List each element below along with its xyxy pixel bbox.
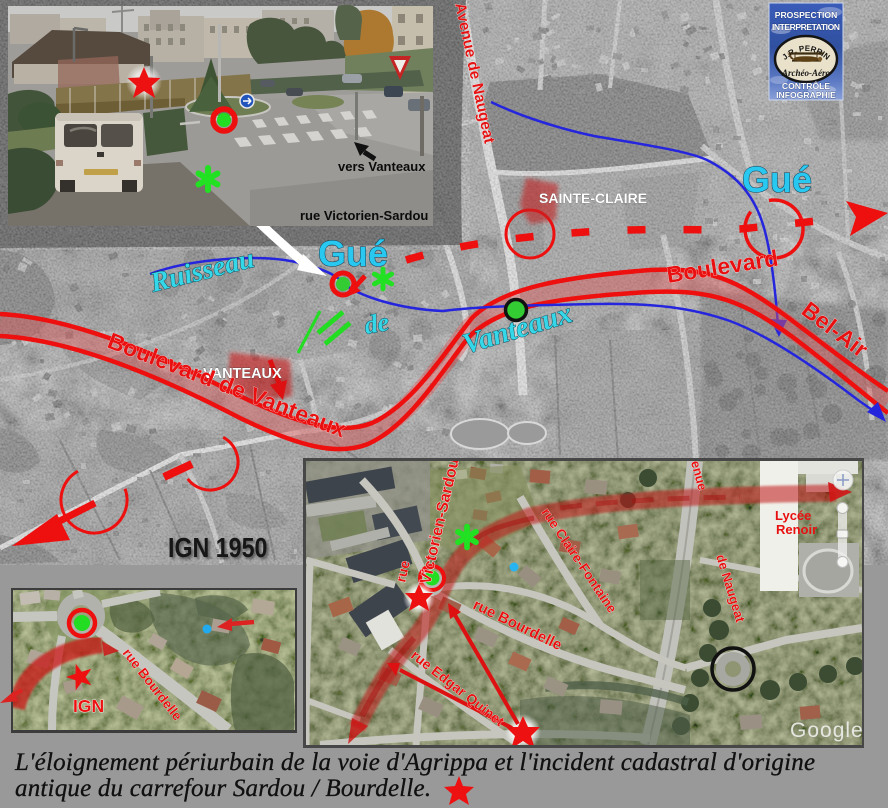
svg-text:Gué: Gué <box>742 159 812 200</box>
svg-text:vers Vanteaux: vers Vanteaux <box>338 159 426 174</box>
svg-text:Google: Google <box>790 719 864 742</box>
svg-text:Renoir: Renoir <box>776 522 817 537</box>
svg-text:SAINTE-CLAIRE: SAINTE-CLAIRE <box>539 190 647 206</box>
svg-text:rue Victorien-Sardou: rue Victorien-Sardou <box>300 208 428 223</box>
svg-text:L'éloignement périurbain de la: L'éloignement périurbain de la voie d'Ag… <box>14 749 815 776</box>
svg-text:Archéo-Aéro: Archéo-Aéro <box>781 68 830 78</box>
svg-text:IGN: IGN <box>73 696 104 716</box>
svg-text:PROSPECTION: PROSPECTION <box>775 10 838 20</box>
svg-text:INTERPRETATION: INTERPRETATION <box>772 22 840 32</box>
svg-text:INFOGRAPHIE: INFOGRAPHIE <box>776 90 836 100</box>
svg-text:antique du carrefour Sardou /: antique du carrefour Sardou / Bourdelle. <box>15 775 431 802</box>
svg-text:IGN 1950: IGN 1950 <box>168 533 267 563</box>
svg-text:Gué: Gué <box>318 233 388 274</box>
svg-text:Lycée: Lycée <box>775 508 811 523</box>
svg-text:de: de <box>362 307 391 340</box>
